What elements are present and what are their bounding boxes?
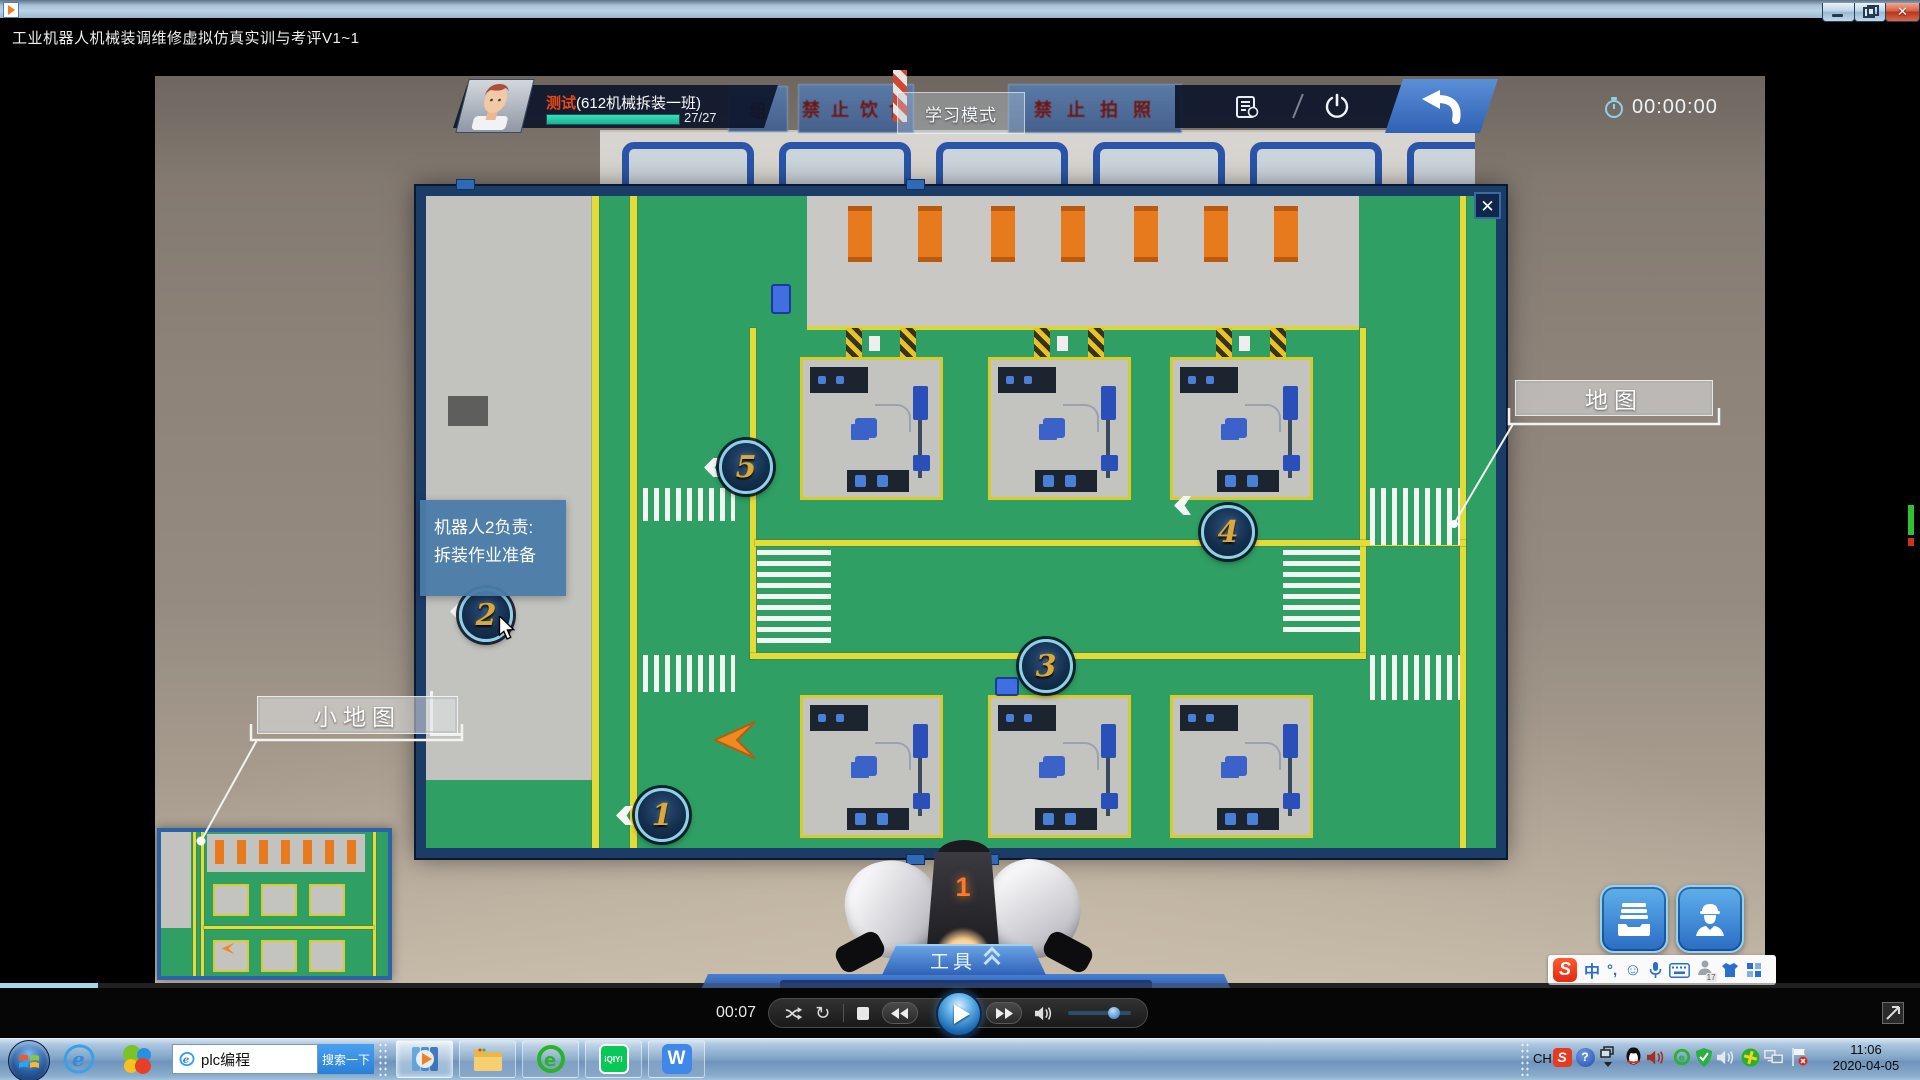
seek-bar[interactable] — [0, 983, 1920, 988]
divider — [843, 1004, 844, 1022]
folder-icon — [472, 1045, 504, 1073]
mute-icon[interactable] — [1035, 1005, 1055, 1022]
taskbar-iqiyi-button[interactable]: iQIYI — [585, 1040, 642, 1078]
window-titlebar — [0, 0, 1920, 18]
taskbar-wmp-button[interactable] — [396, 1040, 453, 1078]
work-cell — [1170, 357, 1313, 500]
media-app-icon[interactable] — [118, 1042, 156, 1076]
board-frame — [1093, 142, 1225, 188]
minimize-button[interactable] — [1822, 3, 1855, 22]
fast-forward-button[interactable] — [986, 1002, 1022, 1024]
app-icon — [3, 2, 19, 18]
tray-360-ball-icon[interactable] — [1740, 1047, 1760, 1067]
clock-time: 11:06 — [1818, 1042, 1914, 1058]
tray-sogou-icon[interactable]: S — [1552, 1047, 1572, 1067]
factory-map: 12345 — [426, 196, 1496, 848]
sim-topbar-right — [1175, 85, 1413, 128]
mode-panel: 学习模式 — [897, 92, 1025, 134]
svg-text:e: e — [72, 1047, 85, 1071]
popup-notch — [456, 179, 475, 190]
360-browser-icon: e — [535, 1044, 567, 1074]
screen: ✕ 工业机器人机械装调维修虚拟仿真实训与考评V1~1 组 禁 止 饮 食 禁 止… — [0, 0, 1920, 1080]
storage-depot — [807, 196, 1359, 330]
robot-tooltip: 机器人2负责: 拆装作业准备 — [420, 500, 566, 596]
work-cell — [988, 357, 1131, 500]
crosswalk — [643, 655, 735, 692]
window-title: 工业机器人机械装调维修虚拟仿真实训与考评V1~1 — [12, 27, 359, 48]
avatar[interactable] — [455, 79, 534, 133]
map-marker-3[interactable]: 3 — [1019, 639, 1073, 693]
repeat-icon[interactable]: ↻ — [815, 1003, 830, 1024]
crosswalk — [643, 488, 735, 521]
equipment-button[interactable] — [1676, 885, 1744, 953]
board-frame — [1407, 142, 1475, 188]
keyboard-icon[interactable] — [1669, 963, 1690, 978]
tools-label: 工具 — [930, 947, 976, 974]
lane-line — [592, 196, 599, 848]
emoji-icon[interactable]: ☺ — [1624, 960, 1641, 980]
progress-count: 27/27 — [684, 110, 717, 125]
minimap-tag: 小地图 — [257, 696, 458, 734]
robot-number: 1 — [924, 872, 1002, 903]
edge-indicator-green — [1908, 505, 1914, 535]
board-frame — [622, 142, 754, 188]
lane-line — [1360, 328, 1366, 659]
tray-360-icon[interactable]: e — [1672, 1047, 1692, 1067]
microphone-icon[interactable] — [1649, 961, 1662, 979]
minimap-player-arrow — [219, 942, 235, 960]
crosswalk — [1370, 655, 1460, 700]
chinese-mode-icon[interactable]: 中 — [1584, 958, 1600, 982]
svg-text:e: e — [1679, 1053, 1685, 1063]
tray-volume-icon[interactable] — [1717, 1047, 1737, 1067]
sogou-toolbar[interactable]: S 中 °, ☺ 17 — [1548, 955, 1776, 985]
edge-indicator-red — [1908, 538, 1914, 546]
banner-no-photo: 禁 止 拍 照 — [1008, 84, 1182, 133]
tray-help-icon[interactable]: ? — [1575, 1047, 1595, 1067]
volume-knob[interactable] — [1108, 1007, 1120, 1019]
volume-slider[interactable] — [1068, 1011, 1131, 1015]
popup-notch — [906, 179, 925, 190]
tray-network-icon[interactable] — [1764, 1047, 1784, 1067]
report-icon[interactable] — [1234, 95, 1260, 124]
map-marker-1[interactable]: 1 — [635, 788, 689, 842]
punctuation-icon[interactable]: °, — [1607, 962, 1617, 979]
elapsed-time: 00:07 — [716, 1004, 756, 1022]
tray-audio-device-icon[interactable] — [1647, 1047, 1667, 1067]
ie-icon[interactable]: e — [60, 1042, 98, 1076]
play-button[interactable] — [936, 991, 982, 1037]
taskbar-search[interactable]: e plc编程 — [172, 1044, 318, 1074]
tray-restore-icon[interactable] — [1600, 1046, 1616, 1075]
crosswalk — [1283, 550, 1360, 636]
agv-robot-icon — [771, 284, 791, 314]
sogou-logo[interactable]: S — [1553, 958, 1577, 982]
class-info: (612机械拆装一班) — [576, 95, 701, 112]
map-tag: 地图 — [1515, 380, 1713, 416]
materials-button[interactable] — [1600, 885, 1668, 953]
crosswalk — [757, 550, 831, 646]
user-name: 测试 — [546, 95, 576, 112]
user-info: 测试(612机械拆装一班) — [546, 92, 701, 113]
power-icon[interactable] — [1324, 93, 1350, 124]
tools-button[interactable]: 工具 — [882, 944, 1046, 975]
rewind-button[interactable] — [882, 1002, 918, 1024]
crosswalk — [1370, 488, 1460, 545]
clock-date: 2020-04-05 — [1818, 1058, 1914, 1074]
tooltip-line1: 机器人2负责: — [434, 514, 566, 542]
windows-flag-icon — [18, 1051, 40, 1071]
tray-grip[interactable] — [1520, 1042, 1531, 1076]
stop-button[interactable] — [857, 1007, 869, 1020]
work-cell — [800, 695, 943, 838]
dark-block — [448, 396, 488, 426]
map-popup: 12345 ✕ — [416, 186, 1506, 858]
start-button[interactable] — [8, 1040, 50, 1080]
seek-bar-fill — [0, 983, 98, 988]
tray-language[interactable]: CH — [1533, 1051, 1552, 1066]
minimap[interactable] — [157, 828, 392, 980]
road-line-top — [755, 540, 1466, 546]
tray-shield-icon[interactable] — [1694, 1047, 1714, 1067]
fullscreen-button[interactable] — [1882, 1002, 1904, 1024]
work-cell — [800, 357, 943, 500]
skin-icon[interactable] — [1721, 962, 1739, 978]
ie-small-icon: e — [179, 1051, 195, 1067]
lane-line — [630, 196, 637, 848]
map-marker-4[interactable]: 4 — [1201, 505, 1255, 559]
back-arrow-icon — [1416, 86, 1468, 126]
close-button[interactable]: ✕ — [1885, 3, 1920, 22]
shuffle-icon[interactable] — [785, 1006, 802, 1021]
taskbar-grip[interactable] — [378, 1042, 389, 1076]
lane-line — [1460, 196, 1466, 848]
board-frame — [779, 142, 911, 188]
svg-text:e: e — [183, 1054, 190, 1066]
iqiyi-icon: iQIYI — [599, 1044, 629, 1074]
worker-icon — [1690, 900, 1730, 938]
mode-label: 学习模式 — [925, 101, 997, 126]
search-go-button[interactable]: 搜索一下 — [318, 1044, 374, 1074]
map-marker-5[interactable]: 5 — [719, 440, 773, 494]
tray-qq-icon[interactable] — [1623, 1047, 1643, 1067]
wmp-icon — [409, 1044, 441, 1074]
whiteboard — [600, 130, 1475, 188]
stopwatch-icon — [1604, 97, 1624, 119]
board-frame — [1250, 142, 1382, 188]
tooltip-line2: 拆装作业准备 — [434, 542, 566, 570]
taskbar-clock[interactable]: 11:06 2020-04-05 — [1818, 1042, 1914, 1074]
svg-text:e: e — [544, 1050, 556, 1071]
back-button[interactable] — [1385, 79, 1498, 133]
map-marker-2[interactable]: 2 — [459, 588, 513, 642]
timer-value: 00:00:00 — [1632, 96, 1718, 119]
taskbar-wps-button[interactable]: W — [648, 1040, 705, 1078]
taskbar-explorer-button[interactable] — [459, 1040, 516, 1078]
tray-action-center-icon[interactable] — [1789, 1047, 1809, 1067]
agv-robot-icon — [995, 677, 1019, 696]
progress-fill — [547, 115, 679, 124]
login-user-icon[interactable]: 17 — [1697, 959, 1714, 981]
search-input-value: plc编程 — [201, 1049, 250, 1070]
wps-icon: W — [662, 1044, 692, 1074]
chevron-up-icon — [986, 953, 998, 969]
toolbox-grid-icon[interactable] — [1746, 962, 1762, 978]
map-close-button[interactable]: ✕ — [1474, 192, 1501, 219]
player-position-arrow — [707, 720, 757, 765]
work-cell — [988, 695, 1131, 838]
board-frame — [936, 142, 1068, 188]
progress-bar — [546, 114, 680, 125]
session-timer: 00:00:00 — [1604, 96, 1718, 119]
work-cell — [1170, 695, 1313, 838]
taskbar-360-button[interactable]: e — [522, 1040, 579, 1078]
drawer-icon — [1614, 900, 1654, 938]
restore-button[interactable] — [1854, 3, 1886, 22]
